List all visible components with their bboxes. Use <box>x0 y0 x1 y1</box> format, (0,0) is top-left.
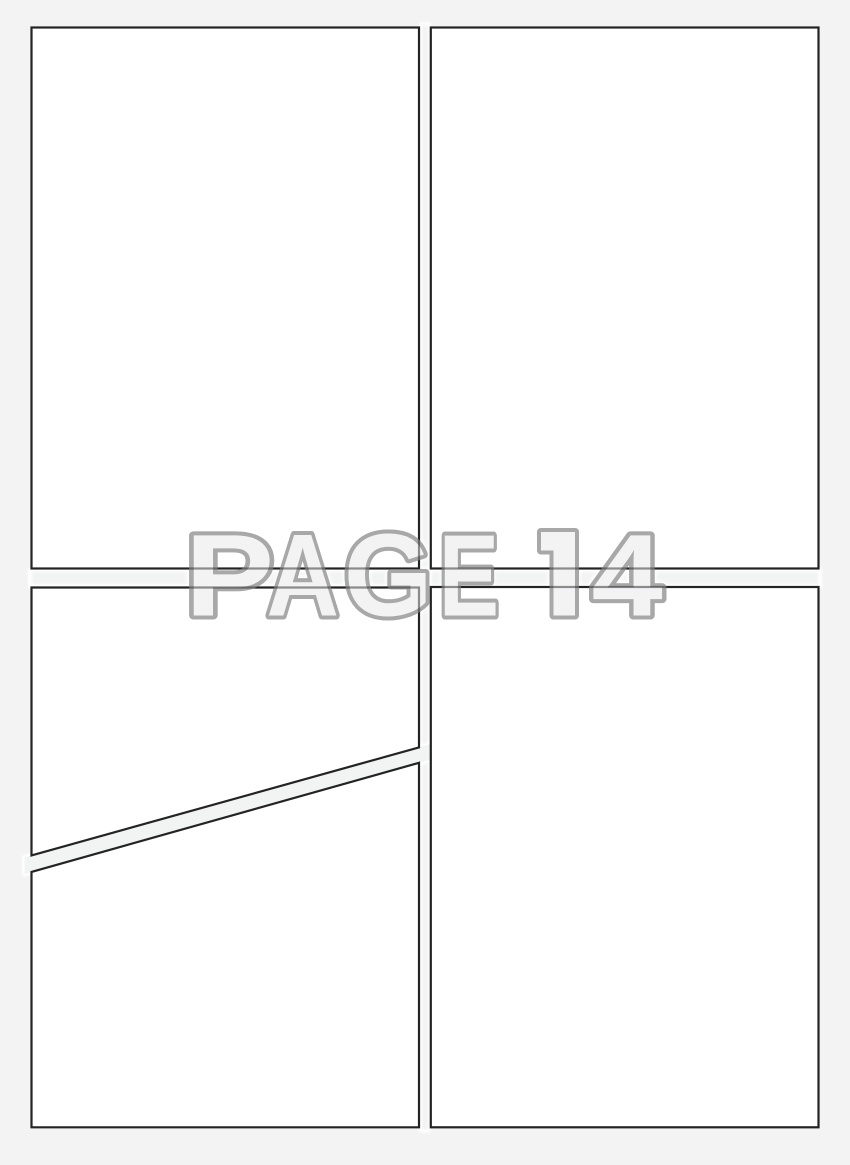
svg-text:G: G <box>344 512 433 641</box>
svg-text:E: E <box>439 512 499 642</box>
svg-text:4: 4 <box>591 510 662 640</box>
svg-text:A: A <box>266 511 339 642</box>
svg-text:P: P <box>185 510 274 641</box>
